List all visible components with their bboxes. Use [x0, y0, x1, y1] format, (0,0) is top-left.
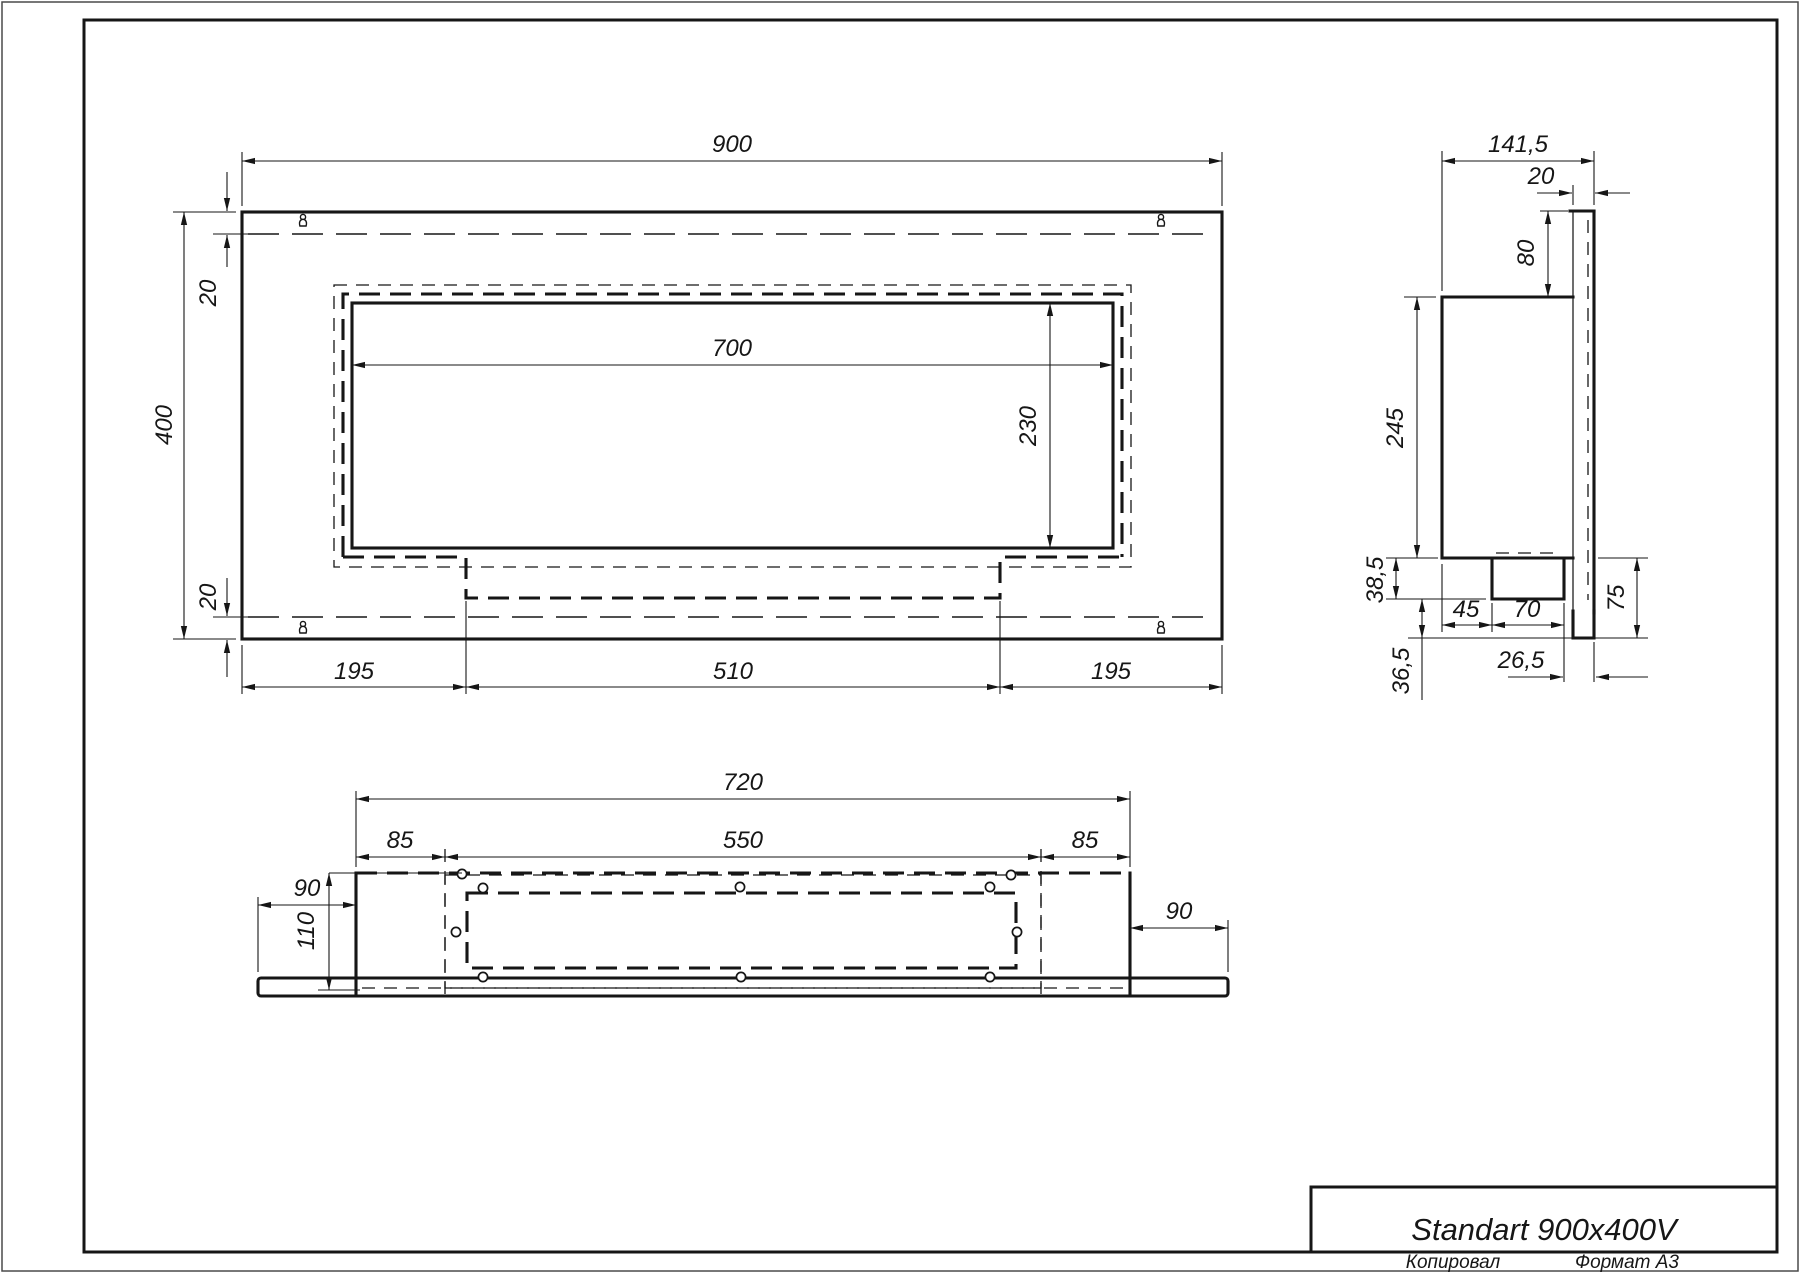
dim-side-hook-drop: 36,5 [1388, 647, 1415, 694]
mount-hole [451, 927, 460, 936]
mount-hole [736, 972, 745, 981]
dim-front-gap-bottom: 20 [195, 583, 222, 611]
dim-side-tray-offset: 45 [1453, 596, 1480, 623]
mount-hole [1012, 927, 1021, 936]
dim-bottom-inset-left: 85 [387, 827, 414, 854]
title-block-model: Standart 900x400V [1411, 1212, 1680, 1247]
dim-bottom-width: 720 [723, 769, 764, 796]
mount-hole [985, 882, 994, 891]
front-outer-body [242, 212, 1222, 639]
side-hook [1573, 611, 1594, 638]
sheet-frame [2, 2, 1798, 1271]
dim-front-opening-width: 700 [712, 335, 753, 362]
dim-front-seg-center: 510 [713, 658, 754, 685]
keyhole-icon [300, 214, 307, 226]
mount-hole [478, 883, 487, 892]
dim-side-tray-width: 70 [1514, 596, 1541, 623]
dim-side-back-above: 80 [1513, 239, 1540, 266]
front-dimension-lines [184, 161, 1222, 687]
dim-side-body-height: 245 [1382, 407, 1409, 449]
dim-bottom-cutout-width: 550 [723, 827, 764, 854]
dim-front-height: 400 [151, 404, 178, 445]
format-label: Формат А3 [1575, 1252, 1679, 1273]
bottom-holes [451, 869, 1021, 981]
side-view: 141,5 20 80 245 38,5 36,5 45 70 75 26,5 [1362, 131, 1648, 700]
bottom-view: 720 85 550 85 90 90 110 [258, 769, 1228, 1000]
dim-side-plate-thickness: 20 [1527, 163, 1555, 190]
dim-side-back-below: 75 [1603, 584, 1630, 611]
dim-bottom-wing-left: 90 [294, 875, 321, 902]
keyhole-icon [1158, 621, 1165, 633]
dim-side-tray-drop: 38,5 [1362, 556, 1389, 603]
dim-front-gap-top: 20 [195, 279, 222, 307]
bottom-cutout-inner [467, 893, 1016, 968]
dim-bottom-wing-right: 90 [1166, 898, 1193, 925]
mount-hole [1006, 870, 1015, 879]
dim-side-depth: 141,5 [1488, 131, 1549, 158]
front-view: 900 400 20 20 700 230 195 510 195 [151, 131, 1222, 694]
copied-label: Копировал [1406, 1252, 1501, 1273]
dim-bottom-inset-right: 85 [1072, 827, 1099, 854]
side-body [1442, 297, 1573, 558]
dim-front-seg-right: 195 [1091, 658, 1132, 685]
dim-bottom-depth: 110 [293, 911, 320, 950]
dim-front-seg-left: 195 [334, 658, 375, 685]
dim-front-width: 900 [712, 131, 753, 158]
drawing-canvas: 900 400 20 20 700 230 195 510 195 [0, 0, 1800, 1273]
keyhole-icon [300, 621, 307, 633]
side-burner-tray [1492, 558, 1564, 599]
dim-side-hook-inset: 26,5 [1497, 647, 1545, 674]
dim-front-opening-height: 230 [1015, 405, 1042, 447]
mount-hole [735, 882, 744, 891]
mount-hole [985, 972, 994, 981]
drawing-sheet: 900 400 20 20 700 230 195 510 195 [0, 0, 1800, 1273]
mount-hole [478, 972, 487, 981]
mount-hole [457, 869, 466, 878]
keyhole-icon [1158, 214, 1165, 226]
front-burner-hidden [343, 557, 1122, 598]
